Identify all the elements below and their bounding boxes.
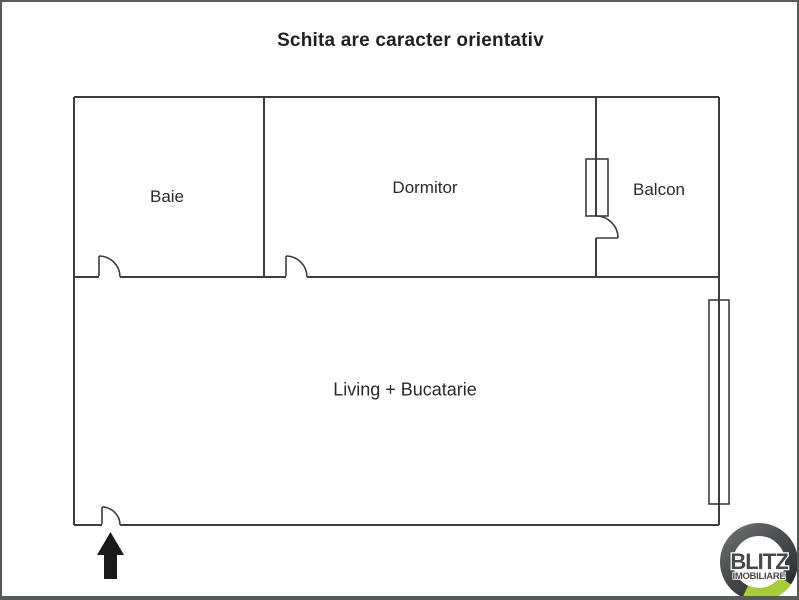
baie-door-arc (99, 256, 120, 277)
floorplan-drawing (2, 2, 799, 600)
room-label-baie: Baie (150, 187, 184, 207)
entrance-arrow (97, 532, 124, 579)
blitz-imobiliare-logo: BLITZ IMOBILIARE (714, 517, 799, 600)
dormitor-door-arc (286, 256, 307, 277)
room-label-balcon: Balcon (633, 180, 685, 200)
room-label-dormitor: Dormitor (392, 178, 457, 198)
floorplan-page: Schita are caracter orientativ (0, 0, 799, 600)
balcon-door-arc (596, 216, 618, 238)
entrance-door-arc (102, 507, 120, 525)
room-label-living: Living + Bucatarie (333, 380, 477, 401)
logo-subtitle-text: IMOBILIARE (733, 571, 786, 582)
